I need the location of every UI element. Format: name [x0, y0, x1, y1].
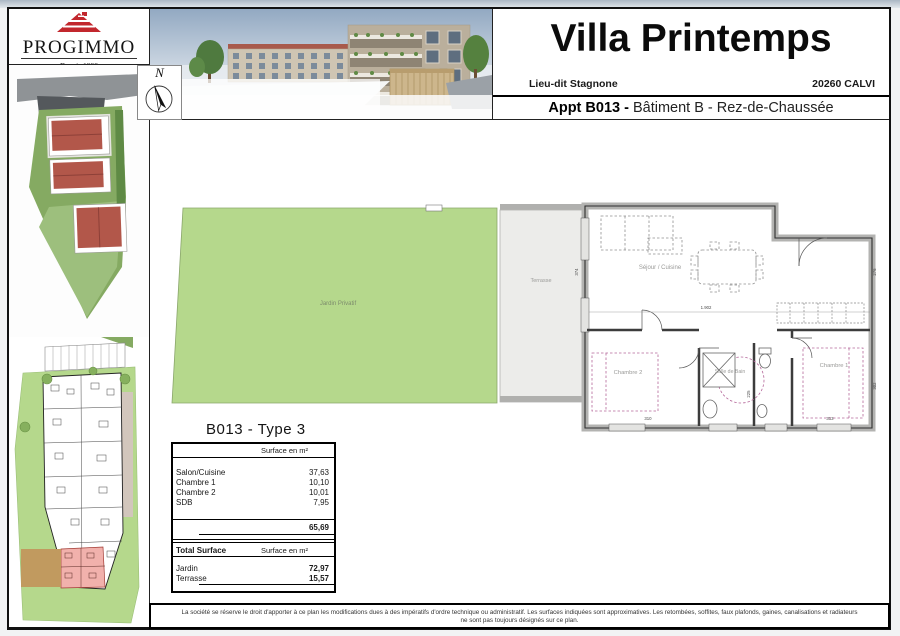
site-floor-plan	[9, 337, 149, 627]
dim-ch1: 313	[826, 416, 834, 421]
background-building	[228, 44, 350, 82]
terrace-label: Terrasse	[530, 278, 551, 284]
table-header-row2: Total Surface Surface en m²	[173, 546, 334, 556]
garden-label: Jardin Privatif	[320, 301, 357, 307]
left-column: PROGIMMO Depuis 1998	[9, 9, 150, 627]
bedroom1-label: Chambre 1	[820, 363, 849, 369]
plan-canvas: Jardin Privatif Terrasse	[150, 120, 889, 627]
compass-needle-icon	[138, 80, 181, 118]
row-value: 37,63	[309, 468, 329, 477]
disclaimer-line2: ne sont pas toujours désignés sur ce pla…	[151, 617, 888, 625]
apartment-location: Bâtiment B - Rez-de-Chaussée	[633, 100, 834, 116]
row-value: 15,57	[309, 574, 329, 583]
building-render-image	[150, 9, 492, 119]
table-row: Salon/Cuisine 37,63	[173, 468, 334, 478]
address-locality: Lieu-dit Stagnone	[529, 78, 618, 90]
apartment-number: Appt B013 -	[548, 100, 629, 116]
apartment-subtitle: Appt B013 -Bâtiment B - Rez-de-Chaussée	[493, 95, 889, 119]
plan-document-page: PROGIMMO Depuis 1998	[0, 0, 900, 636]
row-label: Jardin	[176, 564, 198, 573]
table-row: Chambre 2 10,01	[173, 488, 334, 498]
plan-sheet: PROGIMMO Depuis 1998	[7, 7, 891, 630]
dim-left: 374	[574, 268, 579, 276]
dim-ch2: 310	[644, 416, 652, 421]
bedroom2-label: Chambre 2	[614, 370, 643, 376]
row-value: 7,95	[313, 498, 329, 507]
project-title: Villa Printemps	[493, 17, 889, 61]
site-floor-plan-image	[9, 337, 149, 627]
row-value: 72,97	[309, 564, 329, 573]
row-label: Chambre 1	[176, 478, 216, 487]
table-section-divider	[173, 539, 334, 543]
row-label: Terrasse	[176, 574, 207, 583]
table-total-row: 65,69	[173, 523, 334, 533]
row-value: 10,01	[309, 488, 329, 497]
disclaimer-line1: La société se réserve le droit d'apporte…	[151, 609, 888, 617]
total-surface-header: Total Surface	[176, 546, 226, 555]
dim-right: 276	[872, 268, 877, 276]
table-row: Terrasse 15,57	[173, 574, 334, 584]
dim-sdb: 225	[746, 390, 751, 398]
table-rule	[173, 519, 334, 520]
row-label: Chambre 2	[176, 488, 216, 497]
aerial-site-view	[9, 65, 149, 337]
bathroom-label: Salle de Bain	[715, 369, 746, 375]
title-block: Villa Printemps Lieu-dit Stagnone 20260 …	[493, 9, 889, 120]
row-value: 10,10	[309, 478, 329, 487]
table-row: Chambre 1 10,10	[173, 478, 334, 488]
address-row: Lieu-dit Stagnone 20260 CALVI	[529, 78, 875, 90]
compass: N	[137, 65, 182, 120]
col-header-surface: Surface en m²	[235, 446, 334, 455]
surface-table: Surface en m² Salon/Cuisine 37,63 Chambr…	[171, 442, 336, 593]
table-row: Jardin 72,97	[173, 564, 334, 574]
terrace-area	[500, 210, 583, 402]
dim-ch1-side: 302	[872, 382, 877, 390]
apartment-outline	[585, 206, 872, 428]
table-rule	[173, 556, 334, 557]
compass-north-label: N	[138, 66, 181, 80]
address-city: 20260 CALVI	[812, 78, 875, 90]
row-label: Salon/Cuisine	[176, 468, 225, 477]
table-header-row: Surface en m²	[173, 446, 334, 456]
table-title: B013 - Type 3	[206, 421, 306, 438]
brand-name: PROGIMMO	[21, 38, 138, 59]
building-render	[150, 9, 493, 120]
dim-width: 1.902	[701, 305, 712, 310]
aerial-site-image	[9, 65, 149, 337]
table-rule	[199, 584, 334, 585]
brand-logo: PROGIMMO Depuis 1998	[9, 9, 149, 65]
total-value: 65,69	[309, 523, 329, 532]
table-rule	[173, 457, 334, 458]
progimmo-pyramid-icon	[49, 11, 109, 33]
row-label: SDB	[176, 498, 192, 507]
table-rule	[199, 534, 334, 535]
table-row: SDB 7,95	[173, 498, 334, 508]
living-kitchen-label: Séjour / Cuisine	[639, 265, 682, 271]
col-header-surface2: Surface en m²	[235, 546, 334, 555]
legal-disclaimer: La société se réserve le droit d'apporte…	[149, 603, 890, 629]
